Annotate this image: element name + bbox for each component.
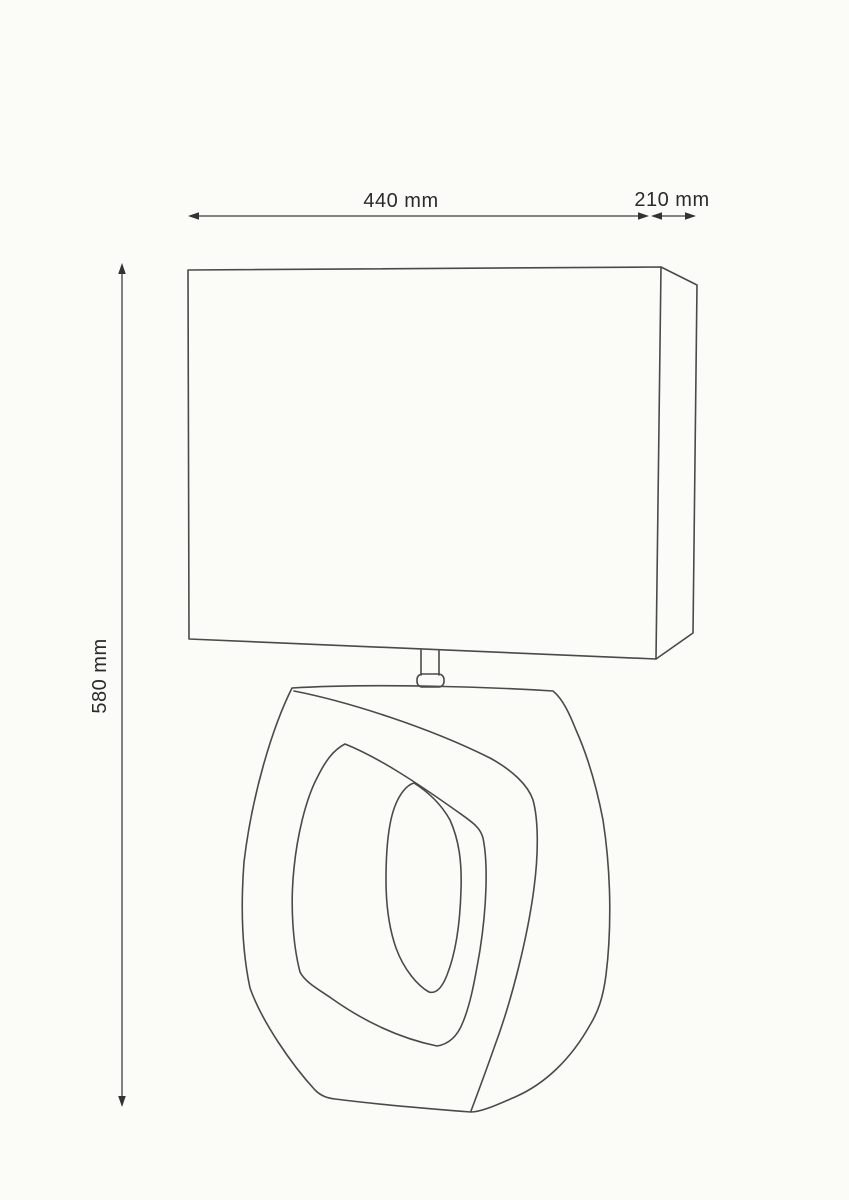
dimension-drawing: 440 mm 210 mm 580 mm xyxy=(0,0,849,1200)
base-sweep-edge xyxy=(294,691,537,1111)
height-arrow-top-icon xyxy=(118,263,126,274)
height-arrow-bottom-icon xyxy=(118,1096,126,1107)
lamp-base xyxy=(242,686,610,1112)
base-outer-outline xyxy=(242,686,610,1112)
width-dimension-label: 440 mm xyxy=(363,190,438,212)
lamp-drawing-svg: 440 mm 210 mm 580 mm xyxy=(0,0,849,1200)
depth-arrow-right-icon xyxy=(685,212,696,220)
lampshade-side-face xyxy=(656,267,697,659)
height-dimension: 580 mm xyxy=(89,263,126,1107)
depth-dimension-label: 210 mm xyxy=(634,189,709,211)
neck-collar xyxy=(417,674,444,687)
width-dimension: 440 mm xyxy=(188,190,649,220)
lampshade-front-face xyxy=(188,267,661,659)
depth-arrow-left-icon xyxy=(651,212,662,220)
height-dimension-label: 580 mm xyxy=(89,638,111,713)
lamp-neck xyxy=(417,650,444,687)
lampshade xyxy=(188,267,697,659)
base-inner-opening xyxy=(386,783,461,992)
width-arrow-left-icon xyxy=(188,212,199,220)
width-arrow-right-icon xyxy=(638,212,649,220)
base-front-opening xyxy=(292,744,486,1046)
